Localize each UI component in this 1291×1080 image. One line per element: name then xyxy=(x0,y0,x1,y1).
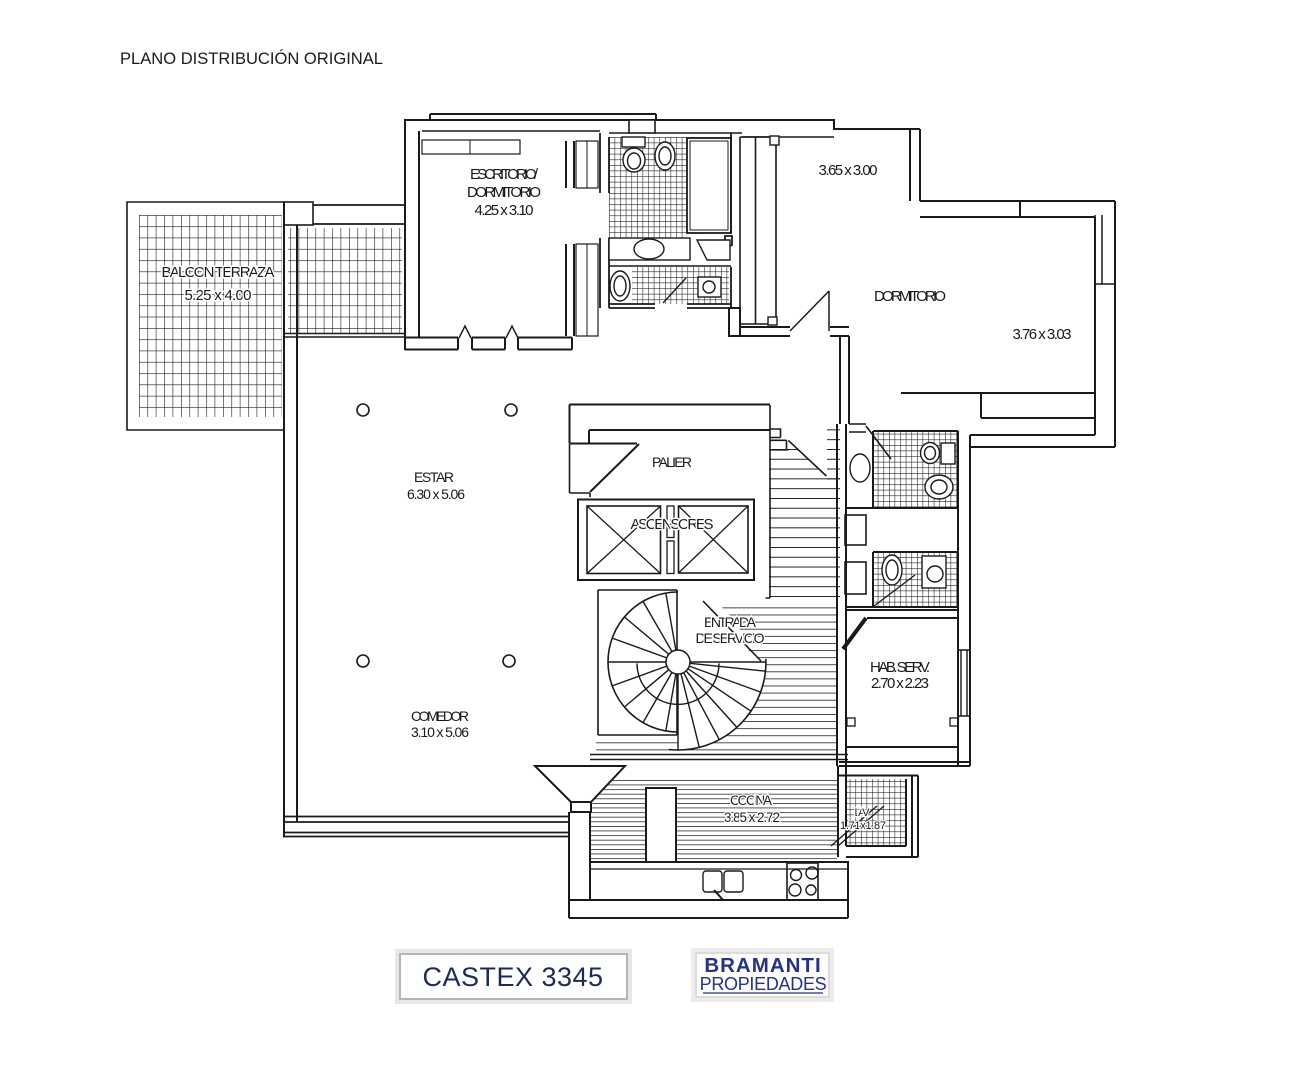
svg-text:4.25 x 3.10: 4.25 x 3.10 xyxy=(475,202,534,219)
svg-text:1.71x1.87: 1.71x1.87 xyxy=(840,820,886,832)
svg-text:5.25 x 4.00: 5.25 x 4.00 xyxy=(185,287,252,304)
svg-text:CASTEX 3345: CASTEX 3345 xyxy=(422,962,603,992)
svg-text:PLANO DISTRIBUCIÓN ORIGINAL: PLANO DISTRIBUCIÓN ORIGINAL xyxy=(120,49,383,68)
svg-text:2.70 x 2.23: 2.70 x 2.23 xyxy=(871,675,929,692)
svg-text:3.85 x 2.72: 3.85 x 2.72 xyxy=(724,810,780,825)
svg-text:6.30 x 5.06: 6.30 x 5.06 xyxy=(407,486,465,502)
svg-text:3.10 x 5.06: 3.10 x 5.06 xyxy=(411,724,469,740)
svg-text:ESTAR: ESTAR xyxy=(414,469,454,485)
svg-text:DORMITORIO: DORMITORIO xyxy=(467,184,541,201)
svg-text:ENTRADA: ENTRADA xyxy=(704,614,757,630)
svg-text:COMEDOR: COMEDOR xyxy=(411,708,469,724)
svg-text:ESCRITORIO/: ESCRITORIO/ xyxy=(470,166,539,183)
svg-text:BALCON TERRAZA: BALCON TERRAZA xyxy=(162,264,275,281)
svg-text:DE SERVICIO: DE SERVICIO xyxy=(696,630,765,646)
svg-text:3.76 x 3.03: 3.76 x 3.03 xyxy=(1013,326,1072,343)
svg-text:DORMITORIO: DORMITORIO xyxy=(874,288,946,305)
svg-text:3.65 x 3.00: 3.65 x 3.00 xyxy=(819,162,878,179)
svg-text:COCINA: COCINA xyxy=(730,793,772,808)
svg-text:ASCENSORES: ASCENSORES xyxy=(631,516,714,533)
svg-text:HAB. SERV.: HAB. SERV. xyxy=(870,659,930,676)
svg-text:LAV: LAV xyxy=(855,807,871,819)
svg-text:PALIER: PALIER xyxy=(652,454,692,470)
svg-text:PROPIEDADES: PROPIEDADES xyxy=(700,974,827,994)
